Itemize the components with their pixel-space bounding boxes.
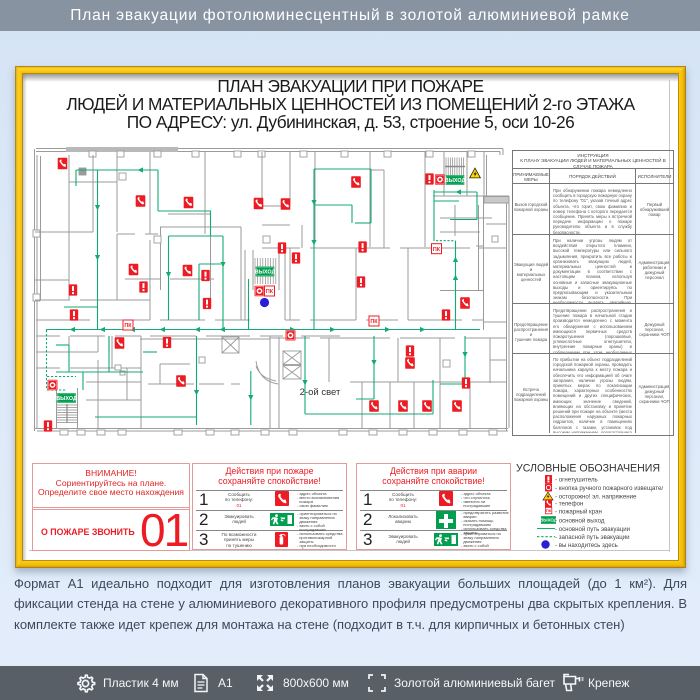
- svg-text:- вы находитесь здесь: - вы находитесь здесь: [555, 542, 618, 549]
- svg-text:УСЛОВНЫЕ ОБОЗНАЧЕНИЯ: УСЛОВНЫЕ ОБОЗНАЧЕНИЯ: [516, 463, 660, 475]
- svg-text:- пожарный кран: - пожарный кран: [555, 508, 602, 515]
- svg-text:- огнетушитель: - огнетушитель: [555, 476, 598, 483]
- svg-text:- запасной путь эвакуации: - запасной путь эвакуации: [555, 534, 630, 541]
- svg-text:- осторожно! эл. напряжение: - осторожно! эл. напряжение: [555, 493, 637, 500]
- svg-text:2-ой свет: 2-ой свет: [300, 387, 341, 398]
- svg-text:- телефон: - телефон: [555, 500, 583, 507]
- svg-text:- основной путь эвакуации: - основной путь эвакуации: [555, 526, 630, 533]
- svg-text:ПК: ПК: [546, 508, 552, 513]
- svg-text:- основной выход: - основной выход: [555, 517, 605, 524]
- svg-text:- кнопка ручного пожарного изв: - кнопка ручного пожарного извещателя: [555, 485, 663, 492]
